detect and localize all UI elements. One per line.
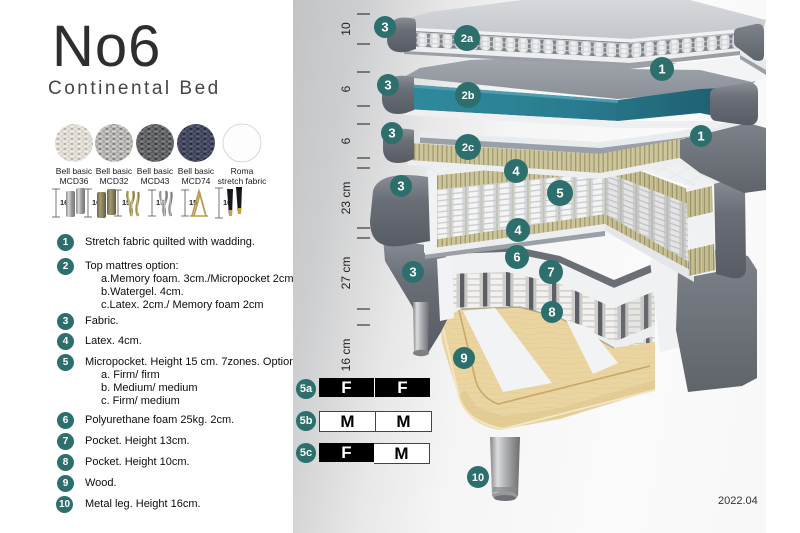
svg-text:3: 3 — [397, 179, 404, 194]
svg-text:2c: 2c — [462, 142, 474, 154]
svg-text:7: 7 — [547, 265, 554, 280]
svg-text:10: 10 — [339, 22, 353, 36]
svg-text:3: 3 — [384, 78, 391, 93]
svg-text:1: 1 — [658, 62, 665, 77]
svg-text:3: 3 — [381, 20, 388, 35]
svg-text:1: 1 — [697, 129, 704, 144]
svg-text:9: 9 — [460, 351, 467, 366]
svg-text:6: 6 — [339, 85, 353, 92]
svg-text:10: 10 — [472, 472, 484, 484]
svg-text:3: 3 — [388, 126, 395, 141]
svg-text:4: 4 — [512, 164, 520, 179]
svg-text:6: 6 — [339, 137, 353, 144]
svg-text:23 cm: 23 cm — [339, 182, 353, 215]
svg-text:2b: 2b — [462, 90, 475, 102]
svg-text:3: 3 — [409, 265, 416, 280]
svg-text:5: 5 — [556, 186, 563, 201]
svg-text:27 cm: 27 cm — [339, 257, 353, 290]
svg-text:6: 6 — [513, 250, 520, 265]
svg-text:4: 4 — [514, 223, 522, 238]
svg-text:2a: 2a — [461, 33, 474, 45]
svg-text:8: 8 — [548, 305, 555, 320]
svg-text:16 cm: 16 cm — [339, 339, 353, 372]
